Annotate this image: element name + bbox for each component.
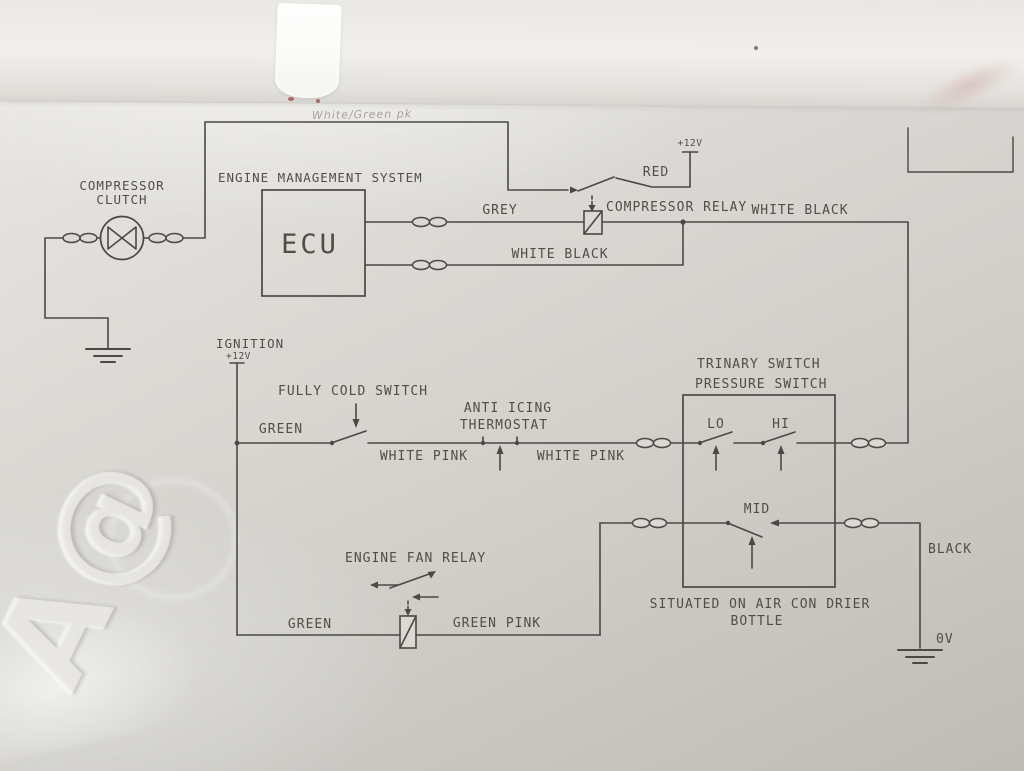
- label-situated-line1: SITUATED ON AIR CON DRIER: [650, 597, 871, 612]
- label-white-pink-left: WHITE PINK: [380, 449, 468, 464]
- label-white-black-right: WHITE BLACK: [751, 203, 848, 218]
- connector-pairs: [63, 218, 886, 528]
- label-grey-wire: GREY: [482, 203, 517, 218]
- fan-relay-link-arrow: [405, 609, 412, 616]
- label-green-bottom: GREEN: [288, 617, 332, 632]
- label-trinary-switch-line1: TRINARY SWITCH: [697, 357, 821, 372]
- label-red-wire: RED: [643, 165, 669, 180]
- handwritten-note: White/Green pk: [312, 107, 412, 122]
- label-lo-switch: LO: [707, 417, 725, 432]
- label-black-wire: BLACK: [928, 542, 972, 557]
- mid-pointer-arrow: [749, 536, 756, 545]
- label-trinary-switch-line2: PRESSURE SWITCH: [695, 377, 827, 392]
- label-anti-icing-line2: THERMOSTAT: [460, 418, 548, 433]
- fan-relay-arrow-mid: [412, 594, 420, 601]
- label-mid-switch: MID: [744, 502, 770, 517]
- label-engine-management-system: ENGINE MANAGEMENT SYSTEM: [218, 170, 423, 185]
- label-ignition-12v: +12V: [226, 351, 251, 362]
- label-anti-icing-line1: ANTI ICING: [464, 401, 552, 416]
- compressor-clutch-symbol: [101, 217, 144, 260]
- fully-cold-pointer-arrow: [353, 419, 360, 428]
- thermostat-pointer-arrow: [497, 445, 504, 454]
- label-green-wire: GREEN: [259, 422, 303, 437]
- label-situated-line2: BOTTLE: [731, 614, 784, 629]
- label-fully-cold-switch: FULLY COLD SWITCH: [278, 384, 428, 399]
- engine-fan-relay-coil: [400, 616, 416, 648]
- wiring-diagram: COMPRESSOR CLUTCH ENGINE MANAGEMENT SYST…: [0, 0, 1024, 771]
- label-compressor-clutch-line2: CLUTCH: [96, 192, 147, 207]
- compressor-relay-coil: [584, 211, 602, 234]
- label-white-black-wire: WHITE BLACK: [511, 247, 608, 262]
- mid-contact-arrow: [770, 520, 779, 527]
- relay-contact-arrow: [570, 187, 578, 194]
- label-green-pink: GREEN PINK: [453, 616, 541, 631]
- label-ecu: ECU: [281, 229, 339, 260]
- label-ignition: IGNITION: [216, 336, 284, 351]
- label-white-pink-right: WHITE PINK: [537, 449, 625, 464]
- label-0v: 0V: [936, 632, 954, 647]
- hi-pointer-arrow: [778, 445, 785, 454]
- label-compressor-relay: COMPRESSOR RELAY: [606, 200, 747, 215]
- trinary-switch-box: [683, 395, 835, 587]
- label-hi-switch: HI: [772, 417, 790, 432]
- label-engine-fan-relay: ENGINE FAN RELAY: [345, 551, 486, 566]
- wire-runs: [45, 122, 1013, 663]
- lo-pointer-arrow: [713, 445, 720, 454]
- fan-relay-arrow-left: [370, 582, 378, 589]
- label-compressor-clutch-line1: COMPRESSOR: [79, 178, 164, 193]
- label-relay-12v: +12V: [678, 138, 703, 149]
